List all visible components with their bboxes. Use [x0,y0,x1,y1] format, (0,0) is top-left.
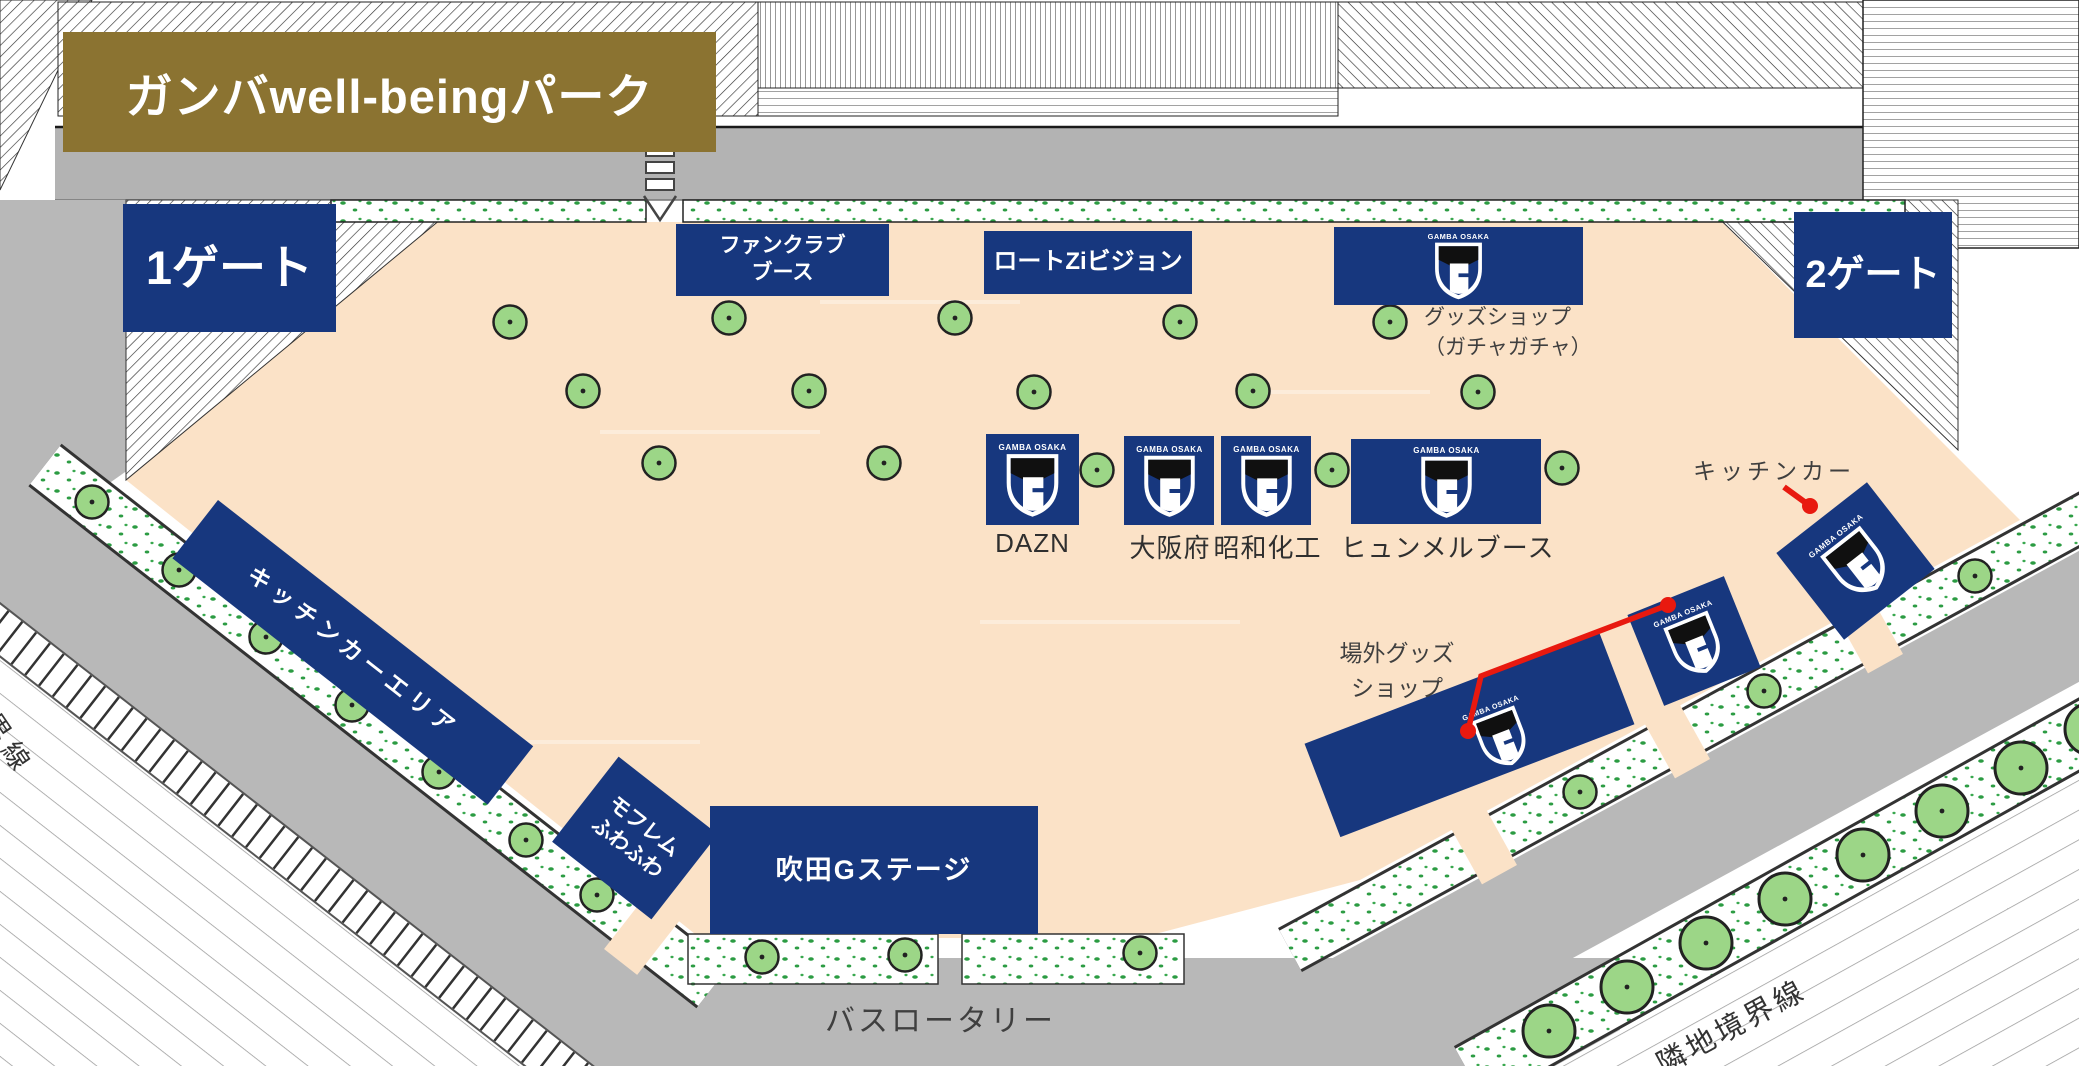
bus-rotary-text: バスロータリー [825,1005,1056,1038]
showa-kako-text: 昭和化工 [1213,533,1321,563]
gamba-osaka-logo [1224,441,1309,521]
gamba-osaka-logo [1404,442,1489,522]
showa-kako-label: 昭和化工 [1210,528,1325,565]
offsite-goods-label: 場外グッズ ショップ [1322,636,1472,705]
showa-kako-logo-booth [1221,436,1311,525]
gamba-osaka-logo [1419,229,1498,303]
gamba-osaka-logo [989,439,1076,521]
gate-1-label: 1ゲート [146,238,313,298]
goods-shop-line2: （ガチャガチャ） [1424,333,1592,363]
gate-2-sign: 2ゲート [1794,212,1952,338]
fanclub-line2: ブース [752,260,814,287]
gate-2-label: 2ゲート [1805,251,1940,300]
dazn-logo-booth [986,434,1079,525]
gamba-osaka-logo [1643,591,1745,691]
gamba-osaka-logo [1127,441,1212,521]
hummel-logo-booth [1351,439,1541,524]
dazn-text: DAZN [995,528,1070,558]
offsite-goods-line1: 場外グッズ [1322,636,1472,671]
goods-shop-label: グッズショップ （ガチャガチャ） [1424,303,1592,364]
suita-g-stage-text: 吹田Gステージ [776,853,972,888]
hummel-text: ヒュンメルブース [1341,533,1555,563]
fanclub-line1: ファンクラブ [720,233,846,260]
rohto-label: ロートZiビジョン [993,247,1182,278]
fanclub-booth-sign: ファンクラブ ブース [676,224,889,296]
title-text: ガンバwell-beingパーク [126,58,654,127]
venue-map: GAMBA OSAKA [0,0,2079,1066]
bus-rotary-label: バスロータリー [825,996,1056,1040]
hummel-label: ヒュンメルブース [1335,528,1560,565]
kitchen-car-label: キッチンカー [1693,452,1855,486]
kitchen-car-text: キッチンカー [1693,458,1855,484]
goods-shop-logo-booth [1334,227,1583,305]
rohto-vision-sign: ロートZiビジョン [984,231,1192,294]
osaka-pref-text: 大阪府 [1129,533,1210,563]
gate-1-sign: 1ゲート [123,204,336,332]
osaka-pref-logo-booth [1124,436,1214,525]
dazn-label: DAZN [975,528,1090,559]
title-banner: ガンバwell-beingパーク [63,32,716,152]
offsite-goods-line2: ショップ [1322,671,1472,706]
goods-shop-line1: グッズショップ [1424,303,1592,333]
suita-g-stage-sign: 吹田Gステージ [710,806,1038,934]
